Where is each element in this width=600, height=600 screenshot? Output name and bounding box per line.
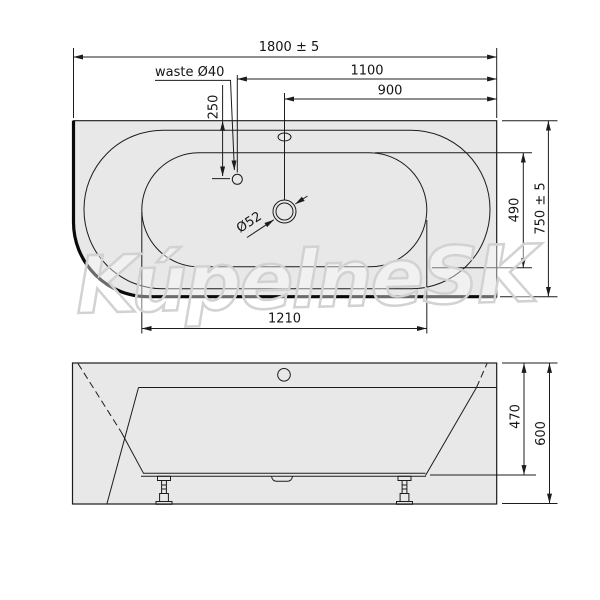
dim-overall-height-label: 600 bbox=[534, 421, 549, 446]
bathtub-technical-drawing: 1800 ± 5 1100 900 waste Ø40 250 bbox=[0, 0, 600, 600]
plan-view: 1800 ± 5 1100 900 waste Ø40 250 bbox=[74, 40, 558, 334]
dim-overflow-distance-label: 900 bbox=[378, 84, 403, 99]
waste-callout-label: waste Ø40 bbox=[155, 65, 224, 80]
tub-outer-body bbox=[74, 121, 497, 297]
panel-body bbox=[73, 363, 497, 504]
dim-basin-width-label: 490 bbox=[508, 198, 523, 223]
dim-basin-length-label: 1210 bbox=[268, 312, 301, 327]
technical-drawing-page: 1800 ± 5 1100 900 waste Ø40 250 bbox=[0, 0, 600, 600]
dim-overall-width-label: 750 ± 5 bbox=[534, 182, 549, 234]
dim-waste-distance-label: 1100 bbox=[350, 64, 383, 79]
dim-overall-length-label: 1800 ± 5 bbox=[259, 40, 320, 55]
dim-waste-offset-label: 250 bbox=[207, 95, 222, 120]
dim-rim-height-label: 470 bbox=[509, 404, 524, 429]
dim-overall-height: 600 bbox=[502, 363, 558, 503]
front-view: 470 600 bbox=[73, 363, 558, 504]
